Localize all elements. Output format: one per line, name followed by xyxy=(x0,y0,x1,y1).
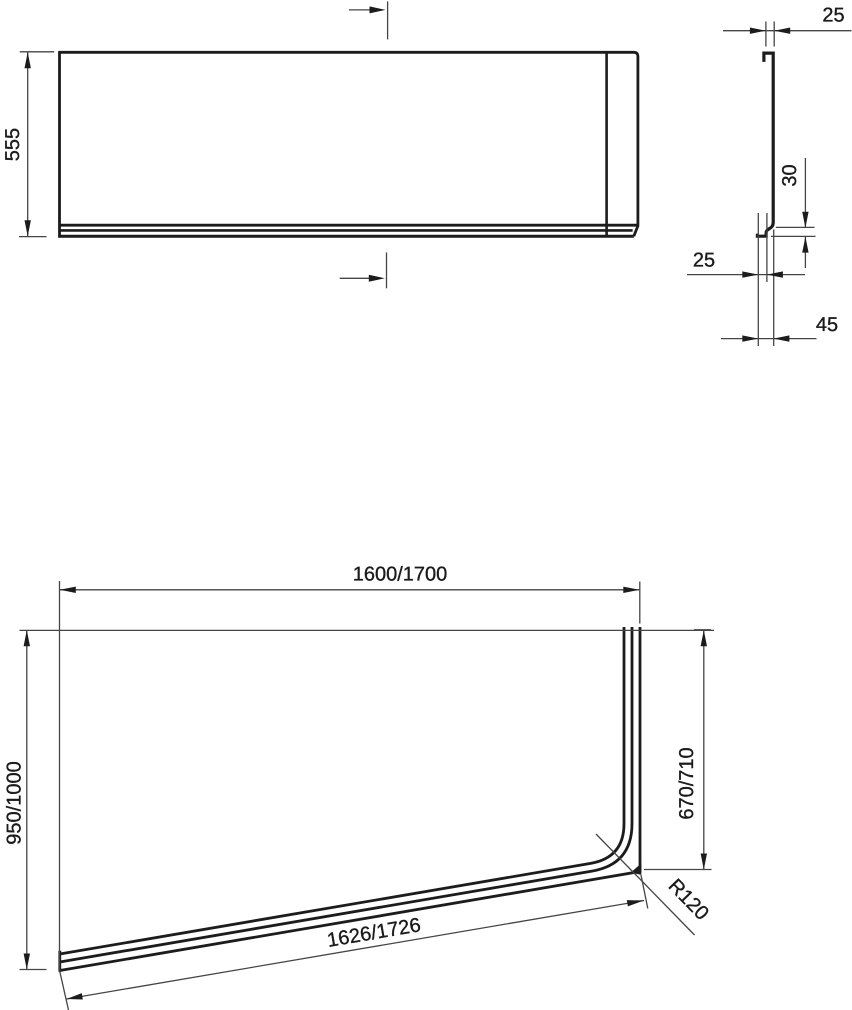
svg-text:1600/1700: 1600/1700 xyxy=(353,564,448,586)
svg-text:25: 25 xyxy=(693,250,715,272)
svg-text:25: 25 xyxy=(822,5,844,27)
svg-text:950/1000: 950/1000 xyxy=(4,761,26,844)
svg-text:670/710: 670/710 xyxy=(676,747,698,819)
svg-text:R120: R120 xyxy=(664,875,713,925)
svg-text:555: 555 xyxy=(2,128,24,161)
svg-text:45: 45 xyxy=(816,314,838,336)
svg-text:30: 30 xyxy=(779,164,801,186)
